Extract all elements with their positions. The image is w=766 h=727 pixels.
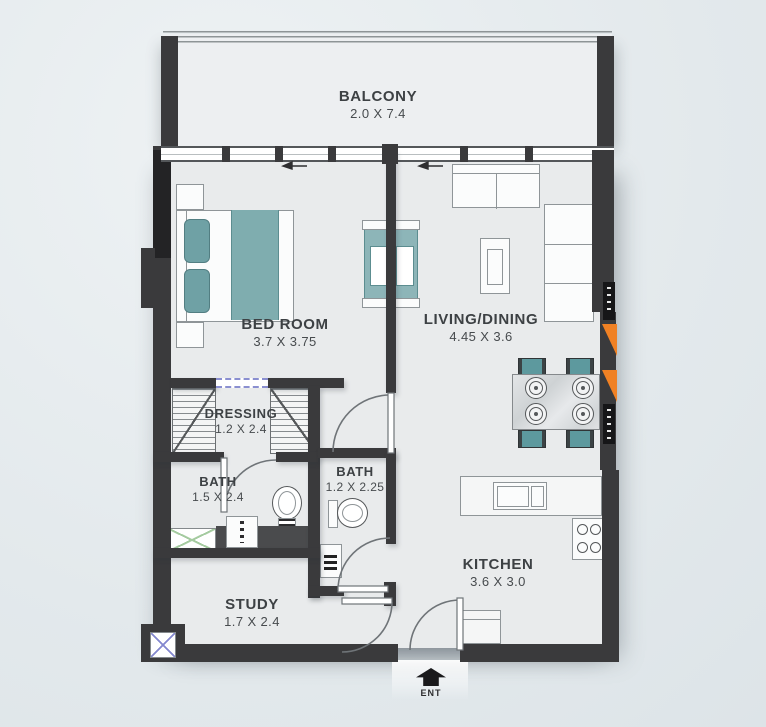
room-tag-kitchen: KITCHEN 3.6 X 3.0 (463, 556, 534, 589)
room-dims: 3.7 X 3.75 (241, 334, 328, 349)
room-dims: 1.2 X 2.4 (205, 422, 278, 436)
room-label: DRESSING (205, 406, 278, 421)
room-dims: 1.2 X 2.25 (326, 480, 385, 494)
bath2-door-arc (338, 538, 390, 590)
room-label: BATH (326, 464, 385, 479)
room-dims: 2.0 X 7.4 (339, 106, 417, 121)
room-dims: 1.5 X 2.4 (192, 490, 244, 504)
door-leaf (338, 586, 388, 592)
door-leaf (342, 598, 392, 604)
door-leaf (388, 393, 394, 453)
room-tag-dressing: DRESSING 1.2 X 2.4 (205, 406, 278, 436)
room-label: KITCHEN (463, 556, 534, 573)
room-tag-balcony: BALCONY 2.0 X 7.4 (339, 88, 417, 121)
floor-plan: BALCONY 2.0 X 7.4 BED ROOM 3.7 X 3.75 LI… (0, 0, 766, 727)
room-label: STUDY (224, 596, 280, 613)
entrance-label: ENT (421, 688, 442, 698)
room-label: BED ROOM (241, 316, 328, 333)
room-dims: 3.6 X 3.0 (463, 574, 534, 589)
room-tag-study: STUDY 1.7 X 2.4 (224, 596, 280, 629)
room-tag-bath-1: BATH 1.5 X 2.4 (192, 474, 244, 504)
hall-door-arc (342, 602, 392, 652)
room-label: LIVING/DINING (424, 311, 538, 328)
door-leaf (457, 598, 463, 650)
room-dims: 1.7 X 2.4 (224, 614, 280, 629)
bedroom-door-arc (333, 395, 390, 452)
room-tag-bath-2: BATH 1.2 X 2.25 (326, 464, 385, 494)
entrance-door-arc (410, 600, 460, 650)
room-label: BALCONY (339, 88, 417, 105)
room-tag-bedroom: BED ROOM 3.7 X 3.75 (241, 316, 328, 349)
room-dims: 4.45 X 3.6 (424, 329, 538, 344)
room-tag-living-dining: LIVING/DINING 4.45 X 3.6 (424, 311, 538, 344)
room-label: BATH (192, 474, 244, 489)
